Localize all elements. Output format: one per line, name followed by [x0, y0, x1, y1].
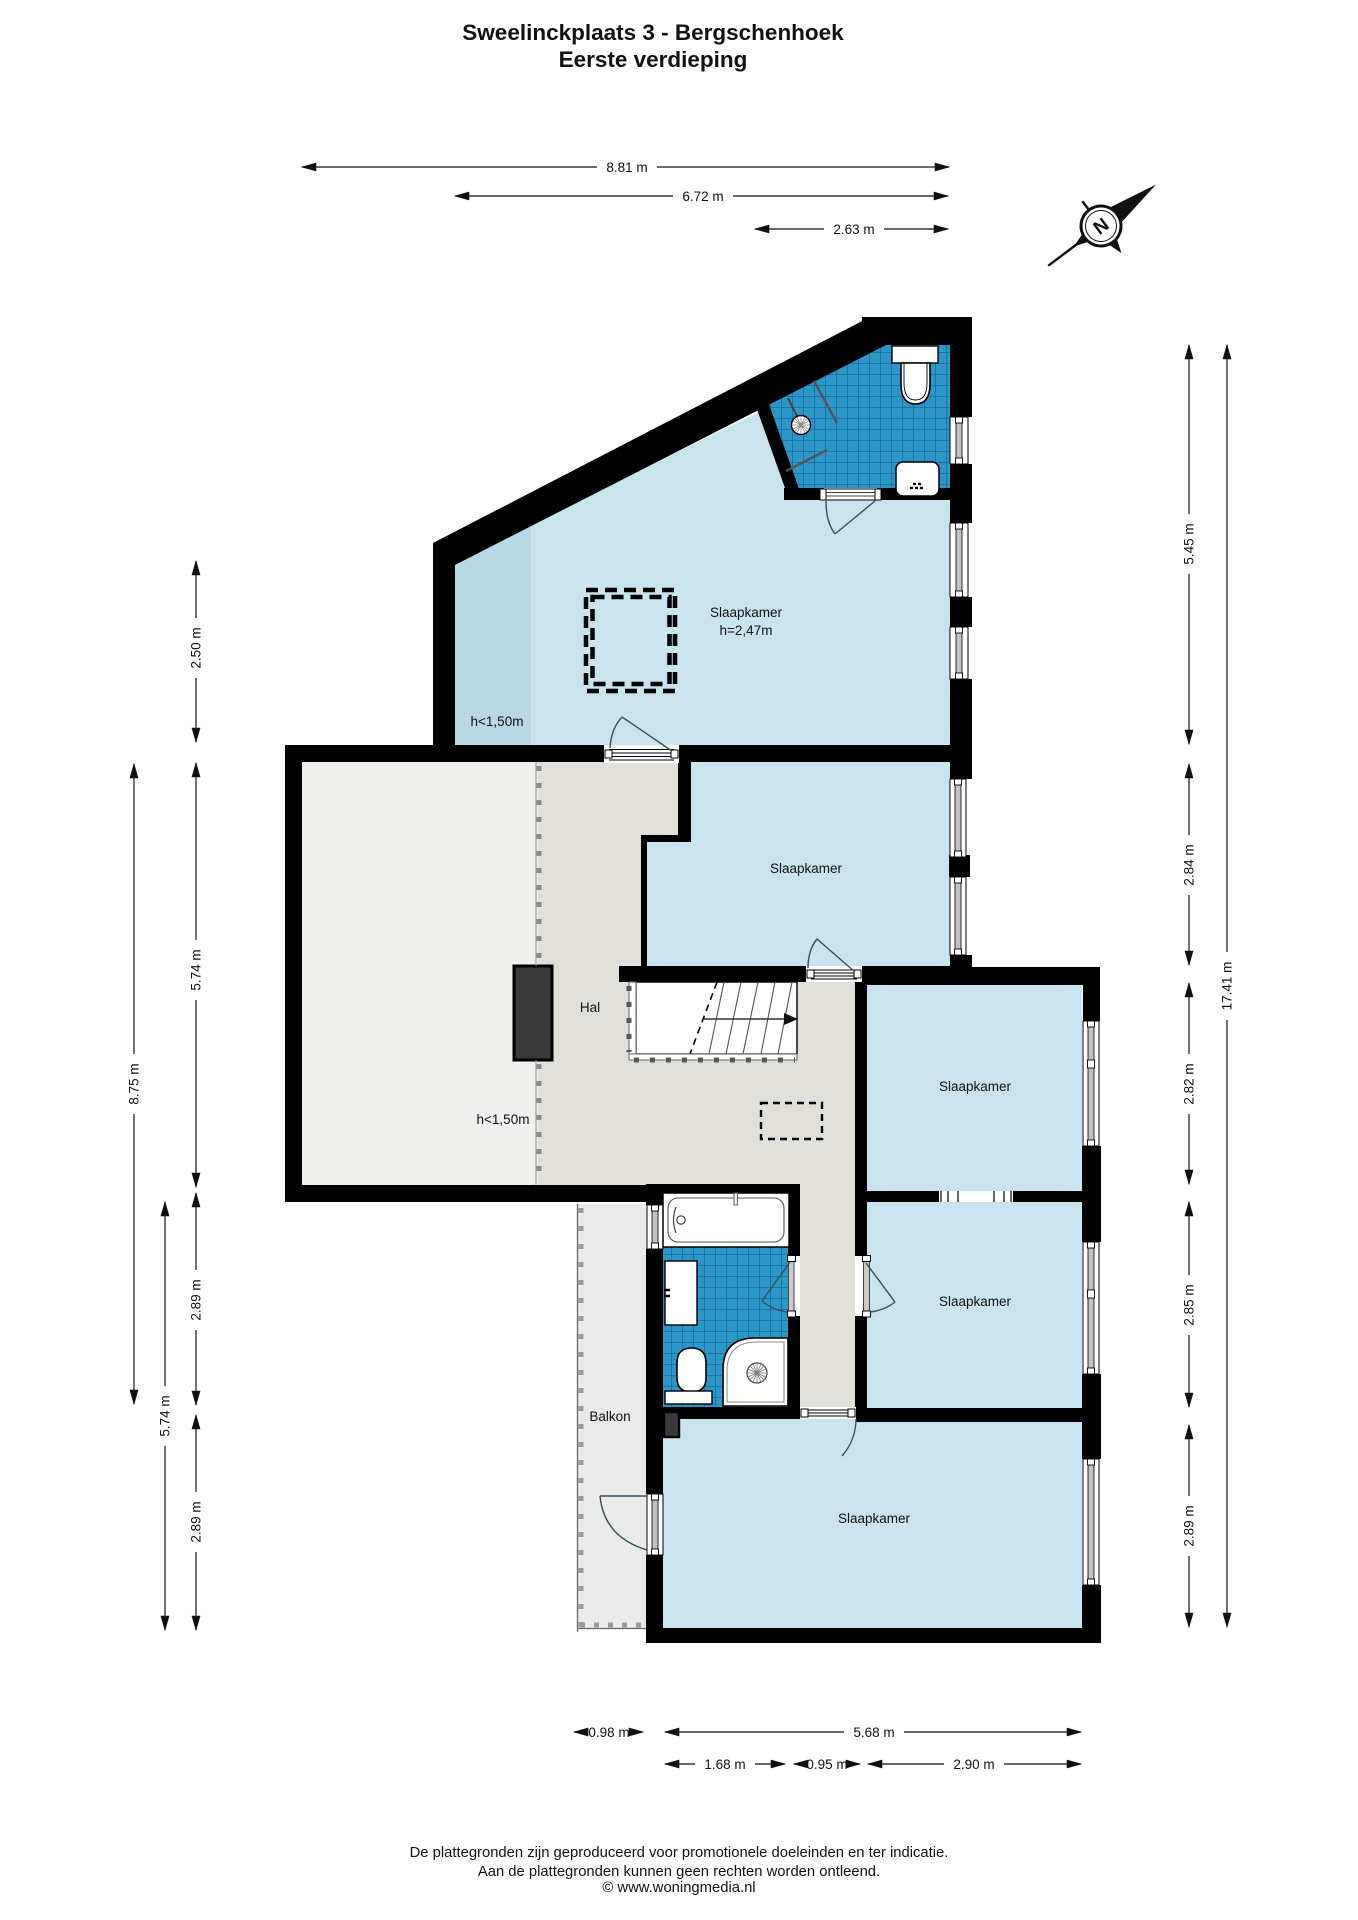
svg-text:0.98 m: 0.98 m — [588, 1725, 629, 1740]
svg-text:2.50 m: 2.50 m — [189, 627, 204, 668]
svg-text:2.84 m: 2.84 m — [1182, 844, 1197, 885]
svg-text:2.85 m: 2.85 m — [1182, 1284, 1197, 1325]
svg-text:Balkon: Balkon — [589, 1409, 630, 1424]
svg-text:2.89 m: 2.89 m — [189, 1279, 204, 1320]
svg-text:Slaapkamer: Slaapkamer — [939, 1294, 1012, 1309]
svg-text:Hal: Hal — [580, 1000, 600, 1015]
svg-text:Slaapkamer: Slaapkamer — [838, 1511, 911, 1526]
svg-text:8.75 m: 8.75 m — [127, 1063, 142, 1104]
svg-text:17.41 m: 17.41 m — [1220, 962, 1235, 1011]
svg-text:8.81 m: 8.81 m — [606, 160, 647, 175]
svg-text:5.74 m: 5.74 m — [189, 949, 204, 990]
svg-text:Eerste verdieping: Eerste verdieping — [559, 47, 748, 72]
svg-text:h<1,50m: h<1,50m — [477, 1112, 530, 1127]
svg-text:2.89 m: 2.89 m — [1182, 1505, 1197, 1546]
svg-text:5.45 m: 5.45 m — [1182, 523, 1197, 564]
svg-text:2.63 m: 2.63 m — [833, 222, 874, 237]
svg-text:© www.woningmedia.nl: © www.woningmedia.nl — [602, 1880, 755, 1896]
svg-text:5.68 m: 5.68 m — [853, 1725, 894, 1740]
svg-text:5.74 m: 5.74 m — [158, 1395, 173, 1436]
svg-text:De plattegronden zijn geproduc: De plattegronden zijn geproduceerd voor … — [410, 1845, 949, 1861]
svg-text:1.68 m: 1.68 m — [704, 1757, 745, 1772]
svg-text:Aan de plattegronden kunnen ge: Aan de plattegronden kunnen geen rechten… — [478, 1864, 880, 1880]
svg-text:6.72 m: 6.72 m — [682, 189, 723, 204]
svg-text:h<1,50m: h<1,50m — [471, 714, 524, 729]
svg-text:2.90 m: 2.90 m — [953, 1757, 994, 1772]
svg-text:Sweelinckplaats 3 - Bergschenh: Sweelinckplaats 3 - Bergschenhoek — [462, 20, 844, 45]
svg-text:2.82 m: 2.82 m — [1182, 1063, 1197, 1104]
svg-text:2.89 m: 2.89 m — [189, 1501, 204, 1542]
svg-text:Slaapkamer: Slaapkamer — [770, 861, 843, 876]
svg-text:h=2,47m: h=2,47m — [720, 623, 773, 638]
svg-text:Slaapkamer: Slaapkamer — [710, 605, 783, 620]
svg-text:Slaapkamer: Slaapkamer — [939, 1079, 1012, 1094]
svg-text:0.95 m: 0.95 m — [806, 1757, 847, 1772]
